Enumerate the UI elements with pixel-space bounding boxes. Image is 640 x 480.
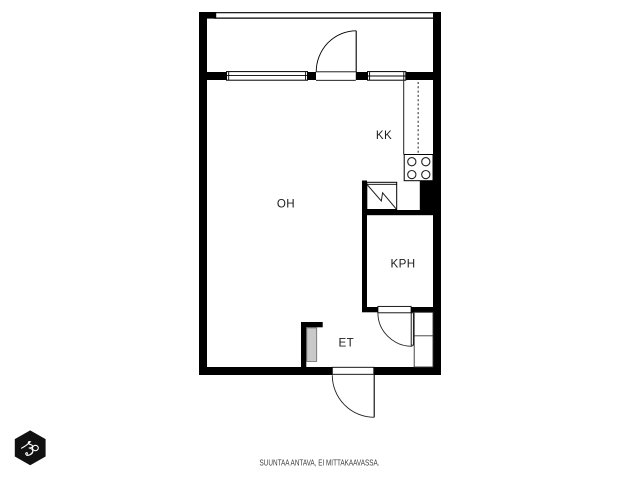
svg-text:ET: ET — [338, 336, 354, 349]
svg-text:KK: KK — [376, 129, 392, 142]
svg-text:SUUNTAA ANTAVA, EI MITTAKAAVAS: SUUNTAA ANTAVA, EI MITTAKAAVASSA. — [260, 457, 380, 467]
svg-text:OH: OH — [277, 198, 295, 211]
svg-text:KPH: KPH — [390, 257, 415, 270]
